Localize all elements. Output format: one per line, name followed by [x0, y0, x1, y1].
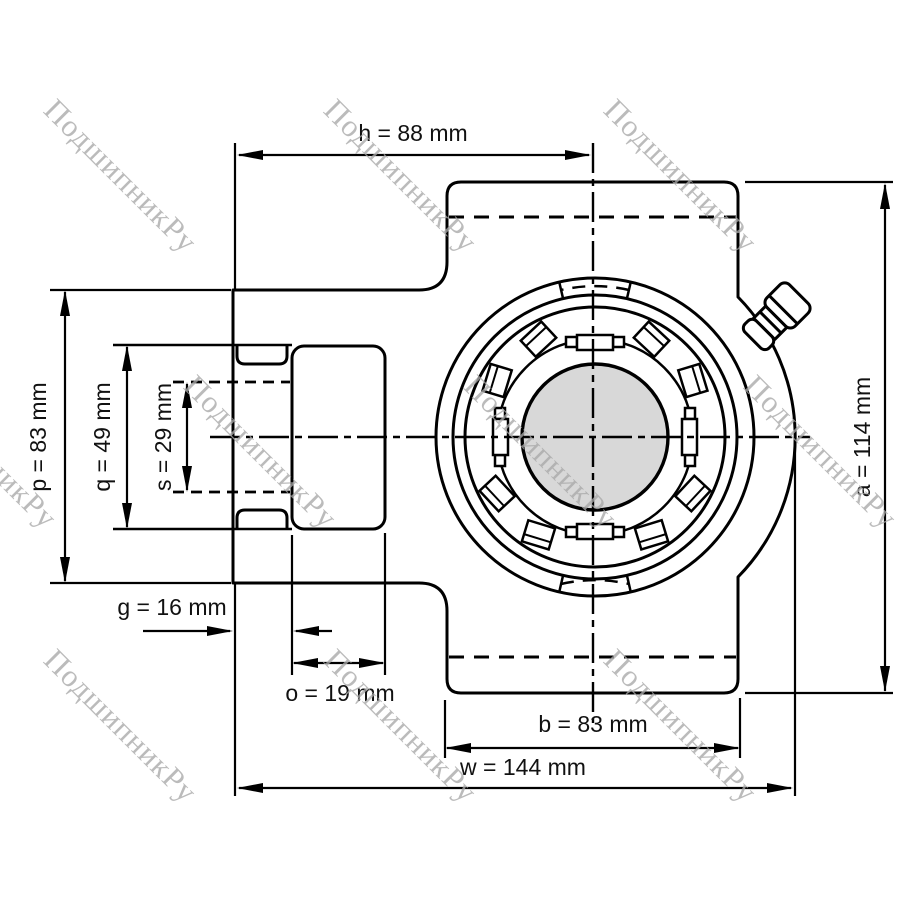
dimension-q — [122, 345, 132, 529]
dimension-s — [182, 382, 192, 492]
dim-label-p: p = 83 mm — [25, 382, 51, 491]
dimension-g — [143, 626, 332, 636]
dim-label-b: b = 83 mm — [538, 711, 647, 737]
dimension-p — [50, 290, 231, 583]
takeup-bearing-unit-drawing: h = 88 mm a = 114 mm p = 83 mm q = 49 mm… — [0, 0, 900, 900]
grease-fitting — [739, 280, 813, 354]
dim-label-g: g = 16 mm — [117, 594, 226, 620]
dim-label-q: q = 49 mm — [89, 382, 115, 491]
dimensions — [50, 143, 893, 796]
dim-label-w: w = 144 mm — [459, 754, 586, 780]
bearing-drawing-canvas: h = 88 mm a = 114 mm p = 83 mm q = 49 mm… — [0, 0, 900, 900]
dimension-o — [292, 533, 385, 675]
dim-label-o: o = 19 mm — [285, 680, 394, 706]
dimension-labels: h = 88 mm a = 114 mm p = 83 mm q = 49 mm… — [25, 120, 875, 780]
dim-label-a: a = 114 mm — [849, 377, 875, 497]
dim-label-h: h = 88 mm — [358, 120, 467, 146]
dim-label-s: s = 29 mm — [150, 383, 176, 491]
